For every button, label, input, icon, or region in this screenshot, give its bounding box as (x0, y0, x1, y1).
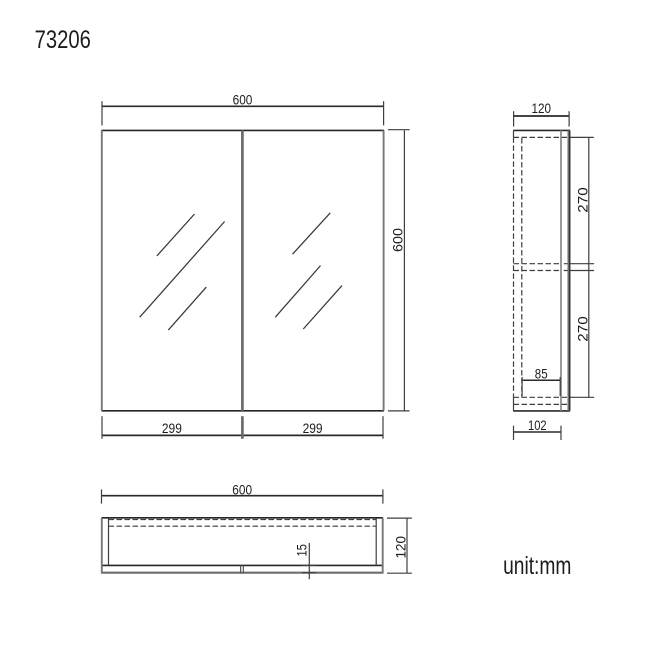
svg-text:299: 299 (162, 421, 182, 436)
svg-text:270: 270 (576, 187, 591, 213)
svg-text:120: 120 (393, 536, 408, 559)
svg-text:73206: 73206 (35, 27, 91, 54)
svg-text:600: 600 (232, 482, 252, 497)
svg-text:unit:mm: unit:mm (503, 552, 571, 580)
svg-text:15: 15 (294, 544, 309, 557)
svg-text:600: 600 (233, 92, 253, 107)
svg-text:270: 270 (576, 316, 591, 342)
svg-text:120: 120 (532, 101, 552, 116)
svg-text:299: 299 (303, 421, 323, 436)
svg-text:85: 85 (535, 366, 548, 381)
svg-text:600: 600 (390, 228, 405, 252)
svg-text:102: 102 (528, 418, 547, 433)
